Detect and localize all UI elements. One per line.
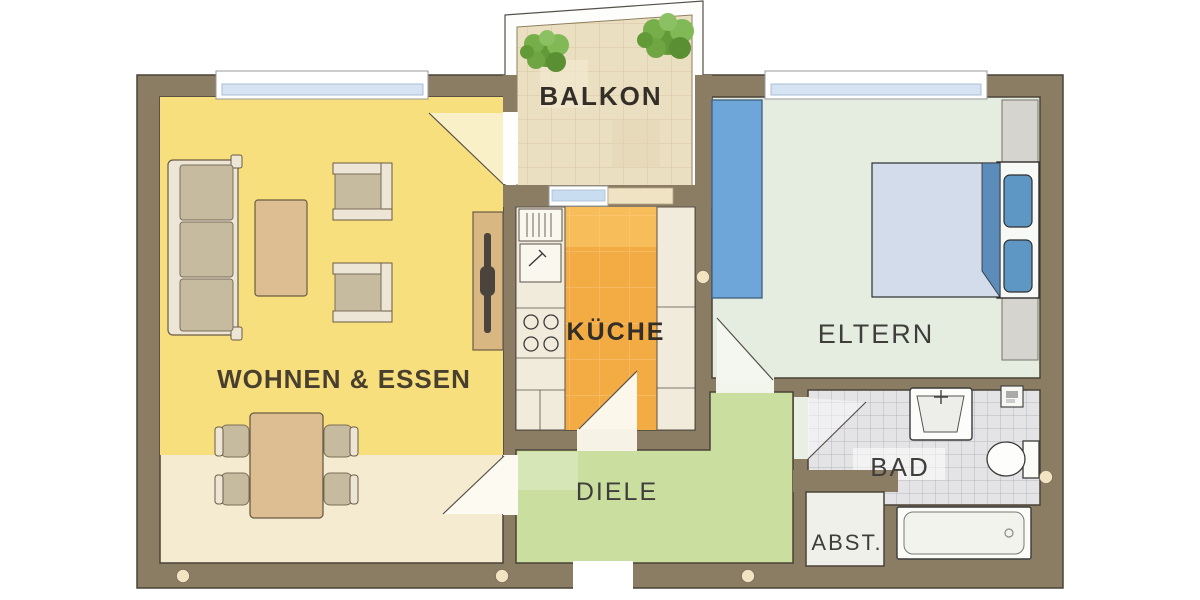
label-wohnen-essen: WOHNEN & ESSEN — [217, 364, 471, 394]
label-bad: BAD — [870, 452, 929, 482]
bathtub — [897, 507, 1031, 559]
label-diele: DIELE — [576, 478, 658, 506]
label-kueche: KÜCHE — [567, 317, 666, 346]
label-balkon: BALKON — [539, 81, 662, 111]
armchair — [333, 163, 392, 220]
dining-chair — [324, 473, 352, 505]
label-eltern: ELTERN — [818, 319, 935, 349]
floor-plan-canvas: BALKON WOHNEN & ESSEN KÜCHE ELTERN DIELE… — [0, 0, 1200, 600]
dining-chair — [324, 425, 352, 457]
tv-board — [473, 212, 503, 350]
armchair — [333, 263, 392, 322]
double-bed — [872, 162, 1039, 298]
dining-chair — [221, 473, 249, 505]
floor-plan: BALKON WOHNEN & ESSEN KÜCHE ELTERN DIELE… — [0, 0, 1200, 600]
toilet — [987, 441, 1039, 478]
sofa — [168, 155, 242, 340]
kitchen-counter-left — [516, 207, 565, 430]
entrance-door-gap — [573, 561, 633, 591]
balcony-tile-patch — [612, 120, 660, 168]
wardrobe — [712, 100, 762, 298]
pillow — [1004, 175, 1032, 227]
door-gap-bad — [794, 397, 809, 459]
kitchen-sink — [520, 244, 561, 282]
closet-top — [1002, 100, 1038, 162]
door-gap-balkon — [503, 112, 518, 184]
label-abst: ABST. — [811, 530, 882, 555]
closet-bottom — [1002, 297, 1038, 360]
bathroom-sink — [910, 388, 972, 440]
pillow — [1004, 240, 1032, 292]
door-gap-wohnen-diele — [503, 455, 518, 515]
diele-floor-highlight — [518, 452, 578, 490]
coffee-table — [255, 200, 307, 296]
dining-chair — [221, 425, 249, 457]
door-gap-kueche — [577, 429, 637, 451]
kueche-floor-highlight — [565, 207, 657, 247]
dish-rack — [519, 209, 562, 241]
dining-table — [250, 413, 323, 518]
window-sill — [608, 188, 673, 204]
window-eltern — [765, 71, 987, 99]
wall-box — [1001, 386, 1023, 407]
window-wohnen — [216, 71, 428, 99]
window-kueche-balkon — [549, 186, 673, 206]
blanket — [872, 163, 1000, 297]
